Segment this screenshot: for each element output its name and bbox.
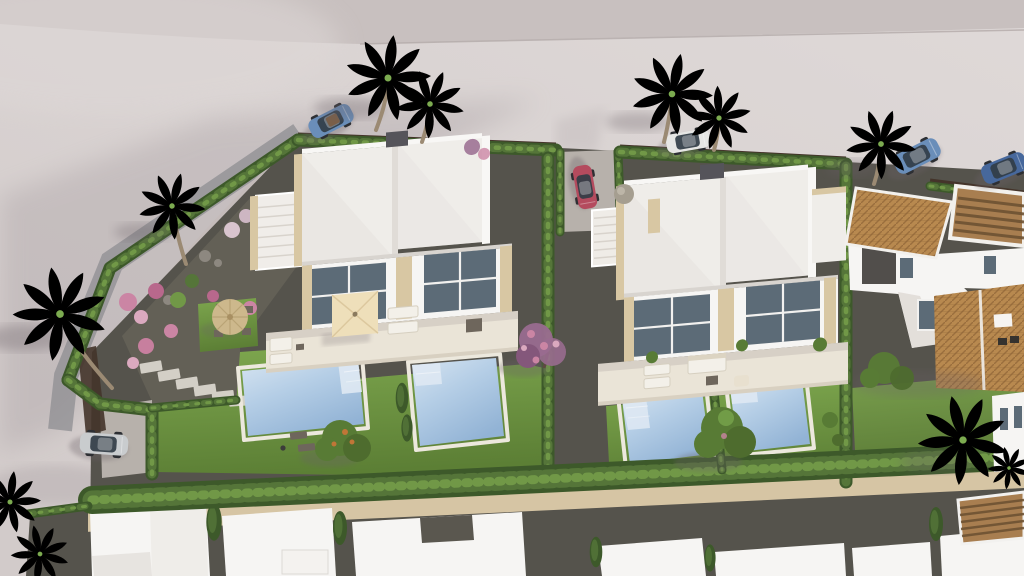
chimney	[386, 131, 408, 148]
bollard-light	[280, 445, 285, 450]
cypress-tree	[704, 544, 715, 571]
stone-trim	[718, 288, 734, 351]
skylight	[998, 338, 1007, 345]
recessed-porch	[862, 248, 896, 284]
coffee-table	[706, 375, 718, 385]
window	[1014, 406, 1022, 428]
aerial-render	[0, 0, 1024, 576]
window-wall	[746, 281, 820, 345]
cypress-tree	[590, 537, 603, 568]
stone-trim	[500, 245, 512, 312]
roof-box	[282, 550, 328, 574]
pergola-bottom-right	[958, 492, 1024, 544]
sun-lounger	[388, 306, 418, 320]
storage-box	[466, 318, 482, 332]
garden-stone	[199, 250, 211, 262]
roof-courtyard	[420, 515, 474, 543]
terracotta-roof-upper	[846, 188, 952, 258]
chimney	[700, 163, 724, 180]
sun-lounger	[644, 364, 670, 376]
outdoor-sofa	[270, 337, 292, 352]
cypress-tree	[929, 507, 943, 541]
flat-roof-step	[92, 552, 152, 576]
cypress-tree	[401, 414, 412, 441]
sun-lounger	[644, 377, 670, 389]
cypress-tree	[333, 511, 347, 545]
window-wall	[634, 294, 710, 357]
pool	[408, 354, 508, 450]
window	[900, 258, 913, 278]
garden-stone	[214, 259, 222, 267]
cypress-tree	[206, 503, 221, 540]
stone-ball	[614, 184, 634, 204]
flat-roof	[852, 542, 932, 576]
window	[984, 256, 996, 274]
outdoor-sofa	[270, 353, 292, 365]
skylight	[1010, 336, 1019, 343]
roof-planter-box	[648, 199, 660, 234]
pouf	[734, 375, 749, 387]
window-wall	[424, 249, 496, 313]
roof-terrace-wing	[812, 190, 846, 263]
stone-trim	[302, 265, 312, 330]
stone-ball-highlight	[617, 187, 625, 195]
side-table	[296, 344, 304, 351]
cypress-tree	[396, 383, 409, 414]
roof-chimney	[994, 313, 1013, 327]
stone-trim	[624, 297, 634, 362]
parapet-stone	[294, 154, 302, 267]
sun-lounger	[388, 321, 418, 335]
pergola-upper	[950, 186, 1024, 246]
flat-roof-shade	[150, 503, 208, 576]
window	[1000, 408, 1008, 430]
stone-trim	[824, 277, 836, 344]
